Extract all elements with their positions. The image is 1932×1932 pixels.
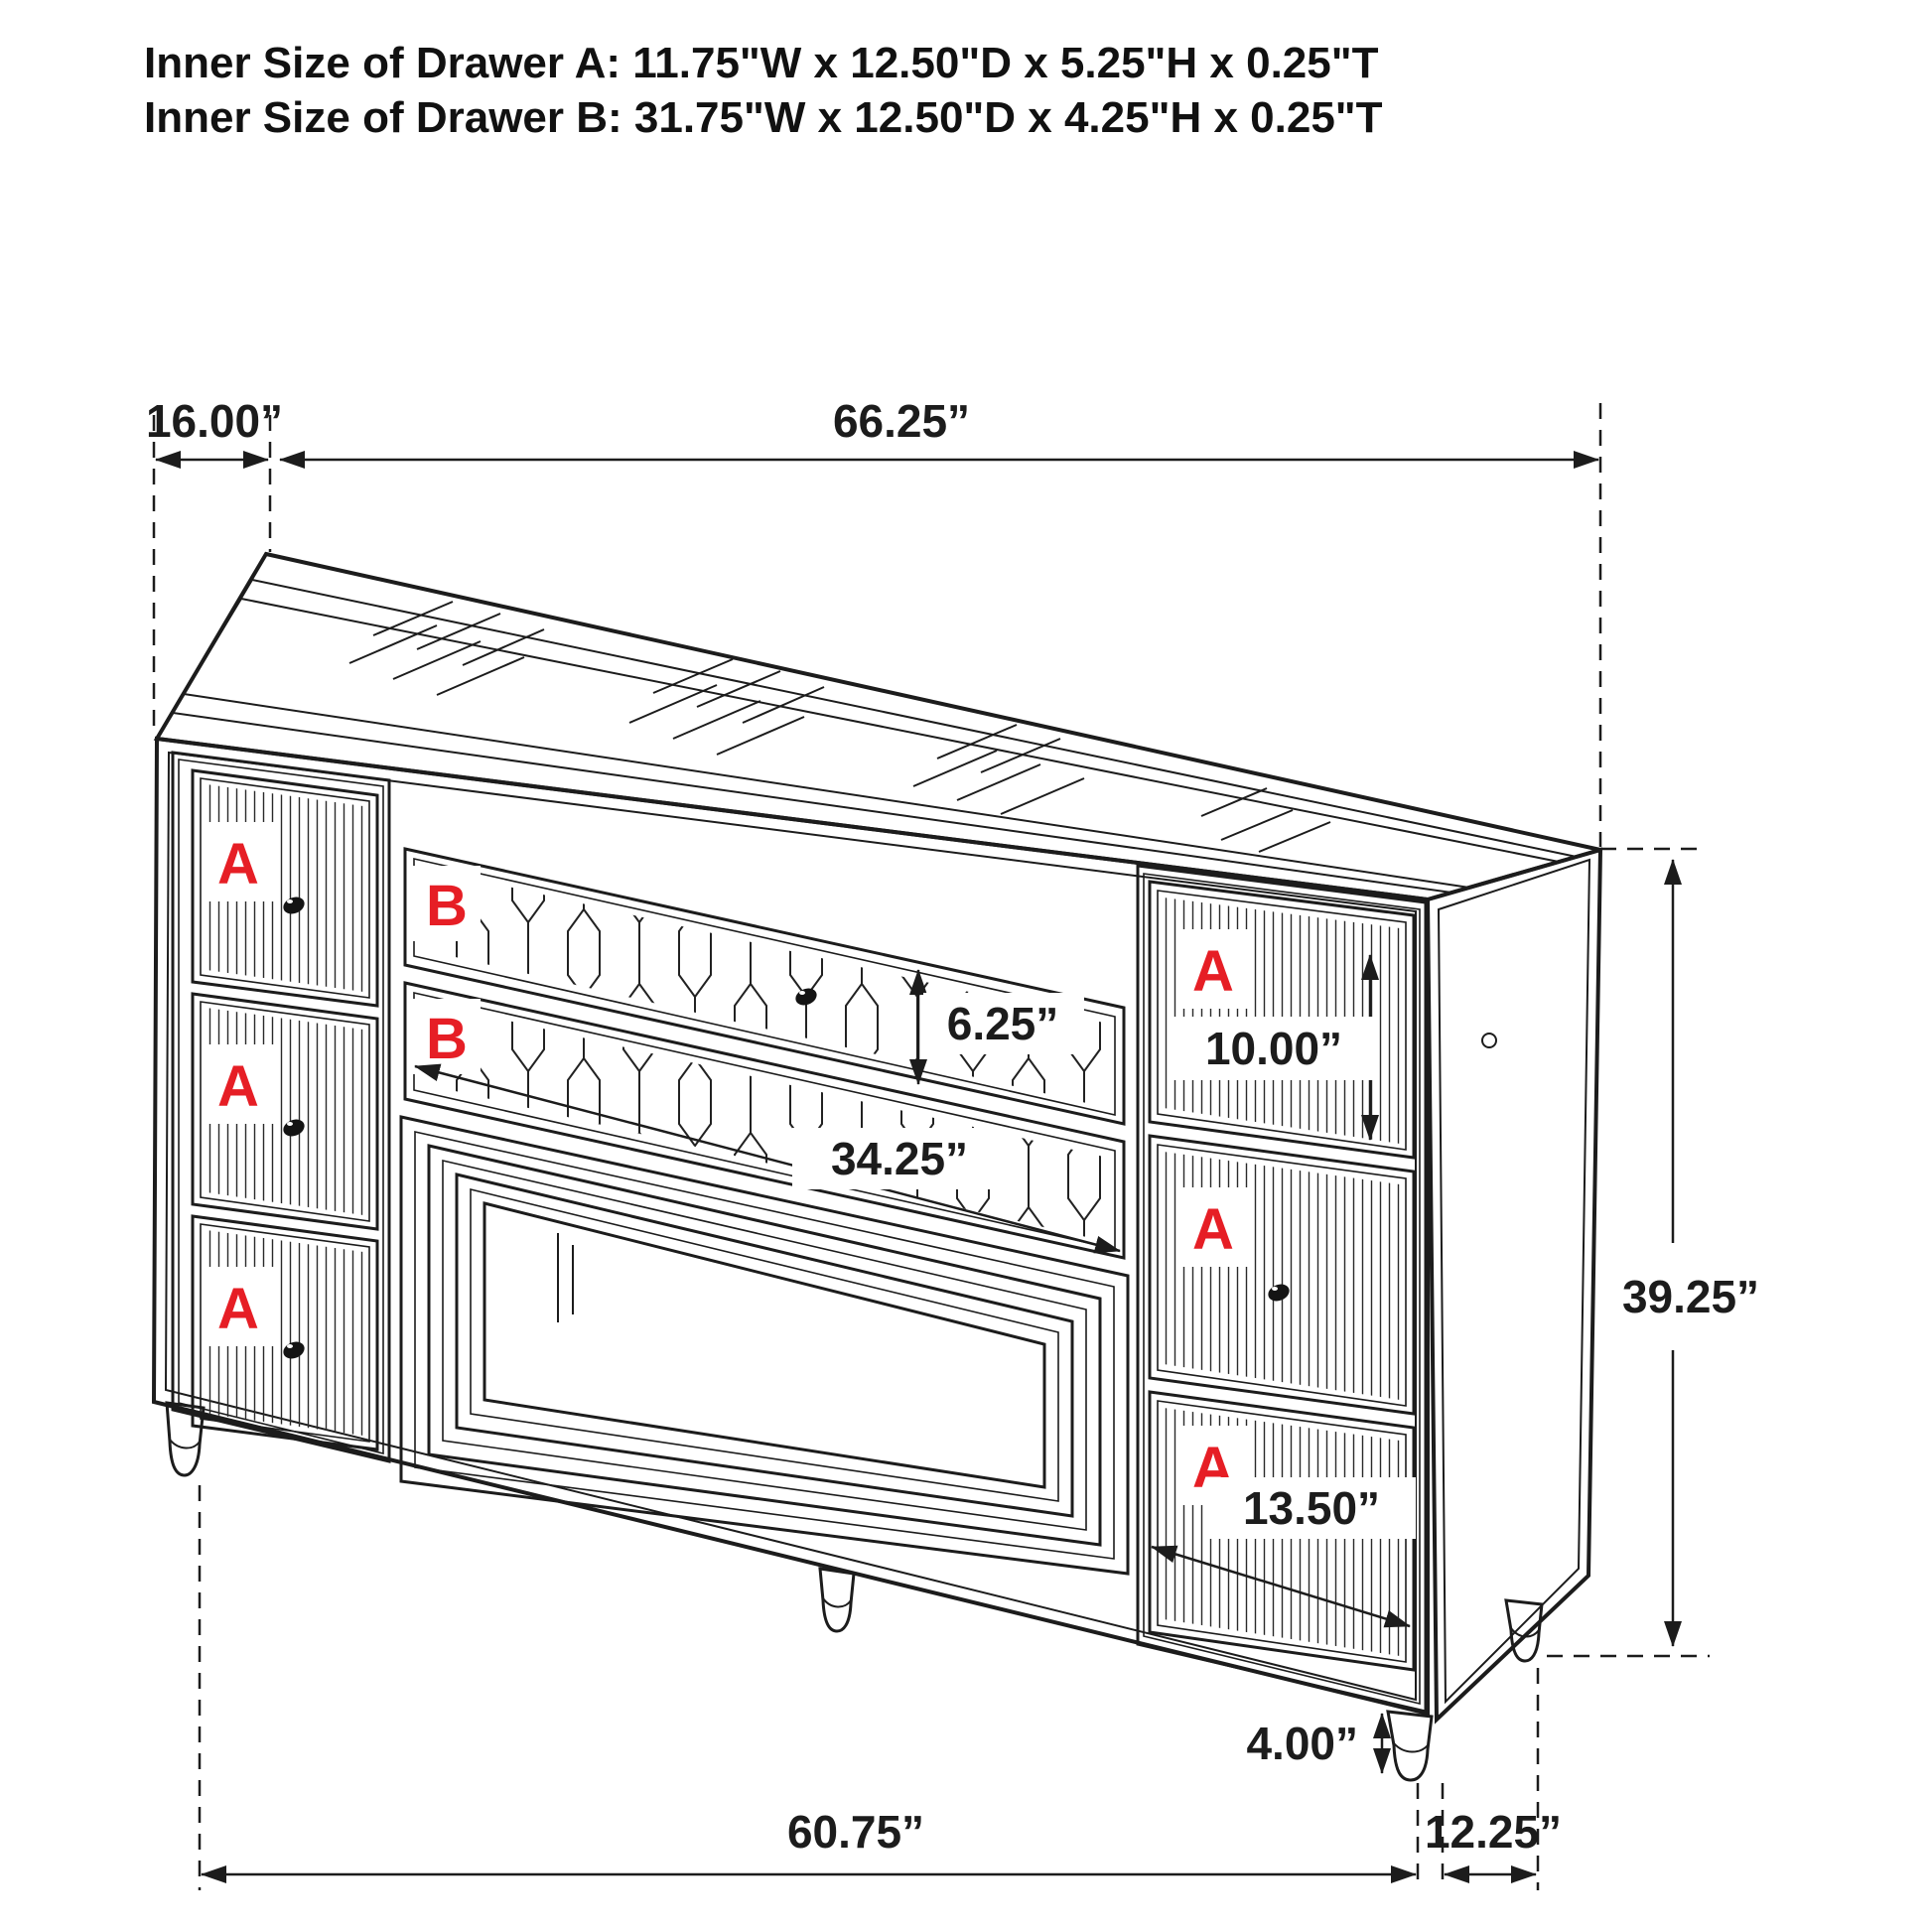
dim-label-bottom-depth: 12.25” xyxy=(1425,1806,1562,1858)
dim-label-cabinet-height: 39.25” xyxy=(1622,1271,1759,1322)
dim-label-right-drawer-width: 13.50” xyxy=(1243,1482,1380,1534)
diagram-canvas: Inner Size of Drawer A: 11.75"W x 12.50"… xyxy=(0,0,1932,1932)
right-side-panel xyxy=(1428,850,1600,1720)
drawer-a-right-2: A xyxy=(1150,1136,1414,1414)
left-drawer-column: A A xyxy=(173,753,389,1461)
dim-label-leg-height: 4.00” xyxy=(1246,1718,1358,1769)
dim-cabinet-height-39-25: 39.25” xyxy=(1622,860,1759,1646)
drawer-a-label: A xyxy=(217,832,259,897)
drawer-a-left-1: A xyxy=(193,770,377,1006)
top-surface xyxy=(157,554,1600,899)
dim-label-drawer-b-width: 34.25” xyxy=(831,1133,968,1184)
dresser-dimension-diagram: Inner Size of Drawer A: 11.75"W x 12.50"… xyxy=(0,0,1932,1932)
title-line-1: Inner Size of Drawer A: 11.75"W x 12.50"… xyxy=(144,39,1379,87)
title-line-2: Inner Size of Drawer B: 31.75"W x 12.50"… xyxy=(144,93,1383,142)
dim-label-bottom-width: 60.75” xyxy=(787,1806,924,1858)
drawer-a-left-3: A xyxy=(193,1216,377,1449)
side-knob-hole xyxy=(1482,1034,1496,1047)
top-reflection-hatch xyxy=(349,602,1330,852)
drawer-b-label: B xyxy=(426,1007,468,1071)
dim-label-top-depth: 16.00” xyxy=(146,395,283,447)
drawer-b-label: B xyxy=(426,874,468,938)
front-right-foot xyxy=(1388,1712,1432,1780)
drawer-a-label: A xyxy=(217,1277,259,1341)
middle-section: B B xyxy=(401,849,1128,1574)
dim-bottom-depth-12-25: 12.25” xyxy=(1425,1806,1562,1874)
drawer-a-label: A xyxy=(217,1054,259,1119)
dim-top-width-66-25: 66.25” xyxy=(280,395,1598,460)
glass-reflection-ticks xyxy=(558,1233,573,1322)
right-drawer-column: A A A xyxy=(1138,866,1426,1712)
dim-label-right-drawer-height: 10.00” xyxy=(1205,1023,1342,1074)
drawer-a-label: A xyxy=(1192,1197,1234,1262)
title-block: Inner Size of Drawer A: 11.75"W x 12.50"… xyxy=(144,39,1383,142)
drawer-a-left-2: A xyxy=(193,994,377,1229)
dim-leg-height-4: 4.00” xyxy=(1246,1714,1382,1773)
drawer-a-label: A xyxy=(1192,939,1234,1004)
center-foot xyxy=(820,1569,854,1631)
dim-top-depth-16: 16.00” xyxy=(146,395,283,460)
dim-label-drawer-b-height: 6.25” xyxy=(947,998,1059,1049)
dim-bottom-width-60-75: 60.75” xyxy=(202,1806,1416,1874)
dim-label-top-width: 66.25” xyxy=(833,395,970,447)
